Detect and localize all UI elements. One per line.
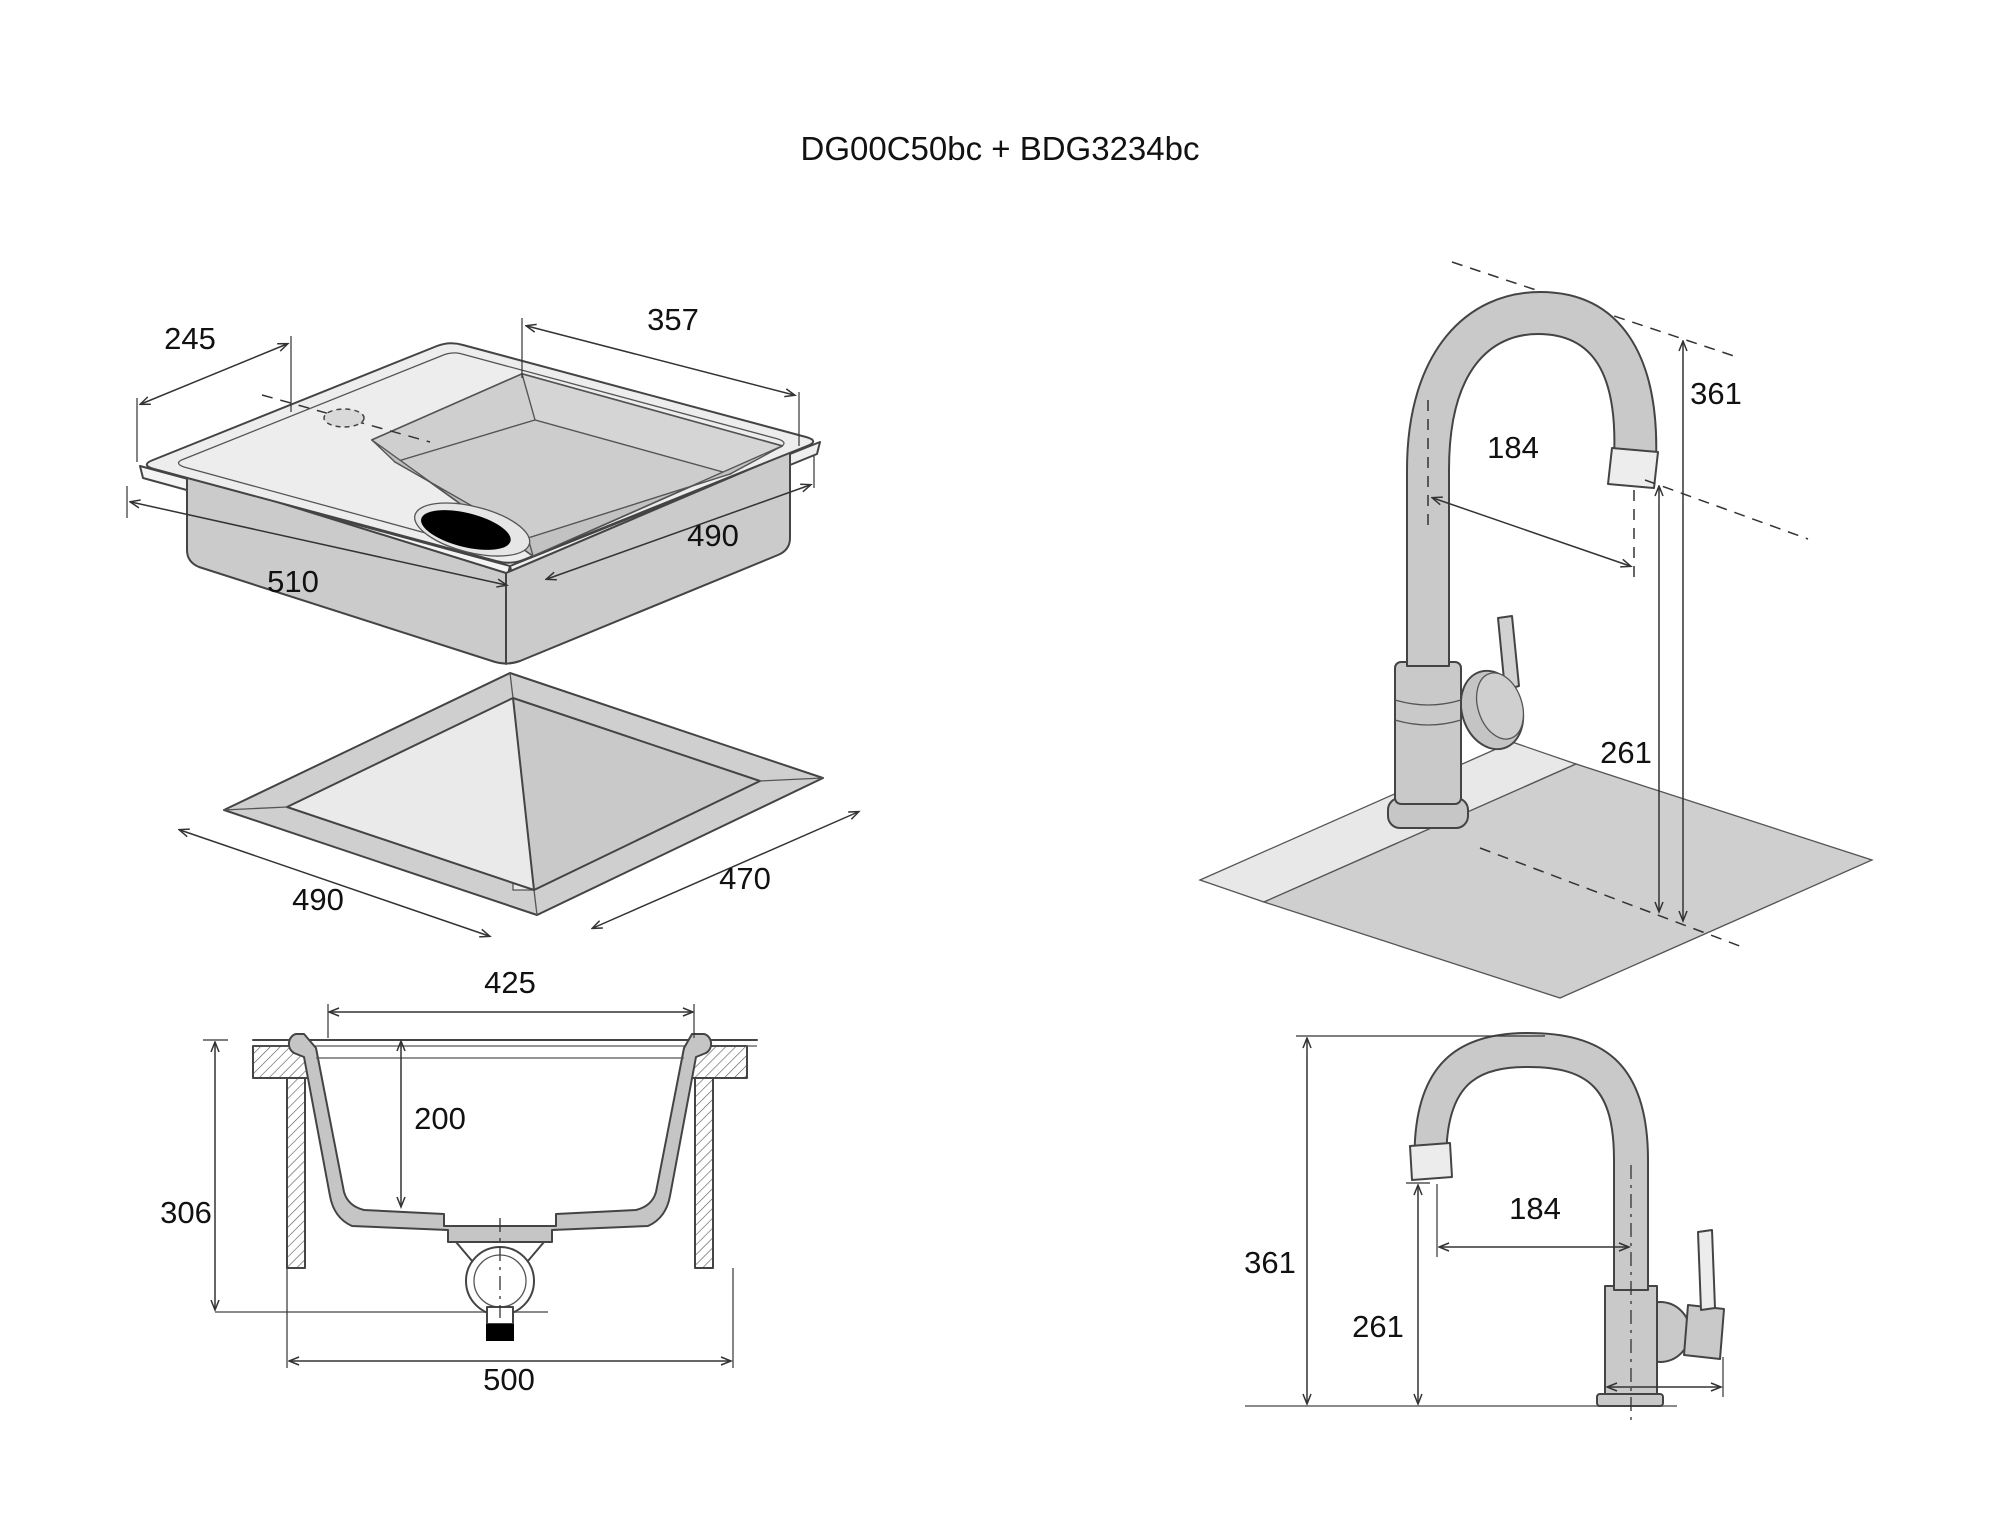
- dim-261-side: [1406, 1183, 1430, 1403]
- dimension-label-sink-iso-basin-width: 357: [647, 302, 699, 337]
- dim-425: [328, 1004, 694, 1038]
- faucet-side-base: [1597, 1394, 1663, 1406]
- faucet-side-aerator: [1410, 1143, 1452, 1180]
- sink-isometric-view: [127, 318, 820, 664]
- counter-cutout-view: [180, 673, 858, 936]
- technical-drawing: 2453575104904904703611842614252003065003…: [0, 0, 2000, 1536]
- cabinet-panel-left: [287, 1078, 305, 1268]
- dimension-label-faucet-side-total-height: 361: [1244, 1245, 1296, 1280]
- dimension-label-faucet-iso-reach: 184: [1487, 430, 1539, 465]
- dim-184-iso: [1433, 498, 1630, 566]
- dimension-label-cutout-depth: 470: [719, 861, 771, 896]
- dimension-label-section-base-width: 500: [483, 1362, 535, 1397]
- dimension-label-faucet-side-reach: 184: [1509, 1191, 1561, 1226]
- bowl-wall-section: [289, 1034, 711, 1242]
- cabinet-panel-right: [695, 1078, 713, 1268]
- dimension-label-section-total-height: 306: [160, 1195, 212, 1230]
- dim-306: [203, 1040, 228, 1309]
- spout-outlet-tangent-dashed: [1645, 480, 1808, 539]
- dimension-label-sink-iso-deck-width: 245: [164, 321, 216, 356]
- faucet-side-view: [1245, 1033, 1724, 1420]
- counter-surface: [1264, 764, 1872, 998]
- dimension-label-faucet-iso-total-height: 361: [1690, 376, 1742, 411]
- drain-outlet: [486, 1324, 514, 1341]
- dimension-label-sink-iso-depth-side: 490: [687, 518, 739, 553]
- dim-361-side: [1296, 1036, 1545, 1403]
- dimension-label-section-bowl-depth: 200: [414, 1101, 466, 1136]
- dimension-label-cutout-width: 490: [292, 882, 344, 917]
- handle-bar: [1698, 1230, 1715, 1310]
- faucet-body: [1395, 662, 1461, 804]
- handle-block: [1684, 1305, 1724, 1359]
- spec-sheet-page: DG00C50bc + BDG3234bc: [0, 0, 2000, 1536]
- dimension-label-section-bowl-top-width: 425: [484, 965, 536, 1000]
- faucet-isometric-view: [1200, 262, 1872, 998]
- dimension-label-sink-iso-length: 510: [267, 564, 319, 599]
- dimension-label-faucet-side-spout-height: 261: [1352, 1309, 1404, 1344]
- sink-section-view: [203, 1004, 757, 1368]
- faucet-hole-icon: [324, 409, 364, 427]
- dimension-label-faucet-iso-spout-height: 261: [1600, 735, 1652, 770]
